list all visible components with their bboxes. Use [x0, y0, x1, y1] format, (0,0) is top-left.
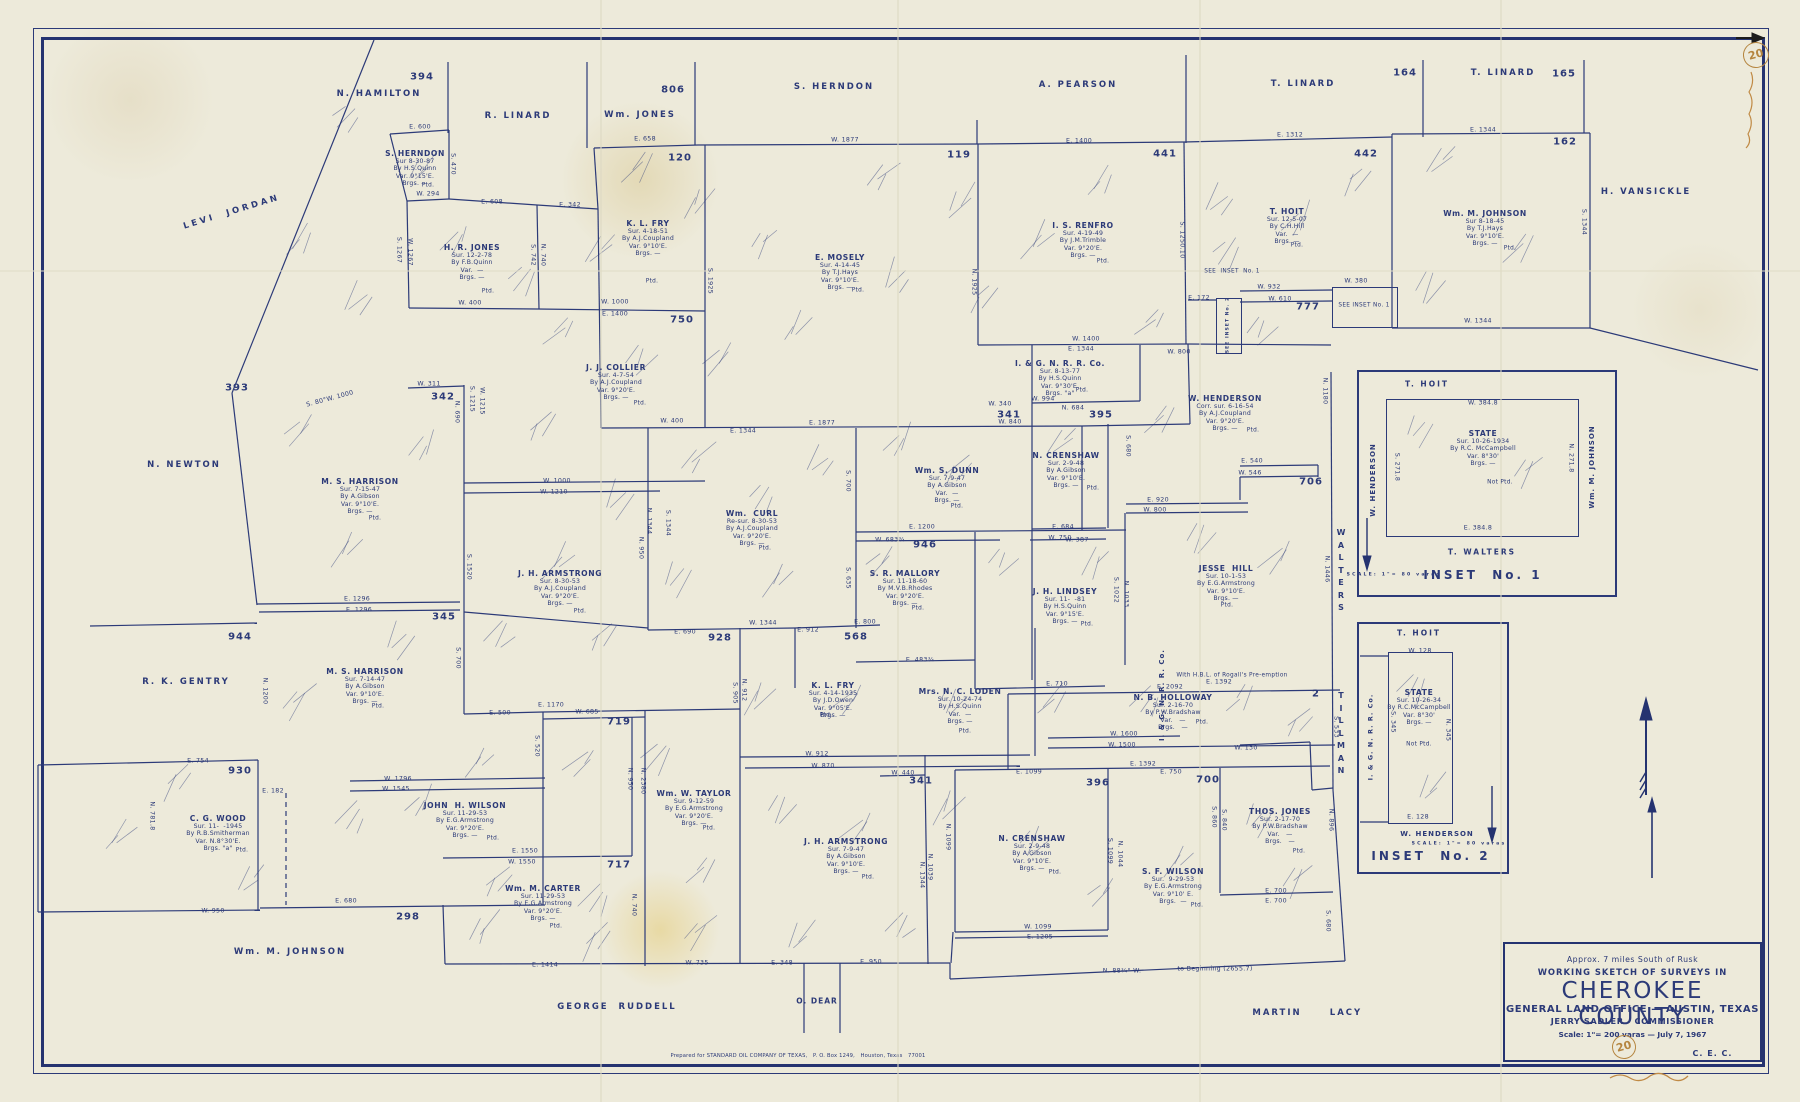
measurement-label: N. 88¾° W. — [1103, 967, 1141, 974]
map-note: Not Ptd. — [1487, 480, 1513, 487]
measurement-label: W. 610 — [1268, 295, 1291, 302]
measurement-label: W. 932 — [1257, 283, 1280, 290]
corner-number: 777 — [1296, 301, 1320, 313]
measurement-label: N. 1044 — [1116, 841, 1123, 868]
measurement-label: E. 684 — [1052, 523, 1074, 530]
edge-name: A. PEARSON — [1039, 81, 1118, 91]
map-note: Ptd. — [646, 279, 659, 286]
corner-number: 706 — [1299, 476, 1323, 488]
measurement-label: N. 912 — [740, 679, 747, 702]
survey-name: T. HOIT — [1267, 207, 1307, 216]
survey-info: Corr. sur. 6-16-54 By A.J.Coupland Var. … — [1188, 403, 1262, 432]
edge-name: T. LINARD — [1271, 80, 1336, 90]
survey-info: Sur. 2-17-70 By P.W.Bradshaw Var. — Brgs… — [1249, 816, 1311, 845]
measurement-label: S. 1344 — [1580, 209, 1587, 235]
survey-block: S. R. MALLORYSur. 11-18-60 By M.V.B.Rhod… — [870, 569, 941, 607]
measurement-label: W. 400 — [458, 299, 481, 306]
measurement-label: E. 1296 — [346, 606, 372, 613]
survey-block: JESSE HILLSur. 10-1-53 By E.G.Armstrong … — [1197, 564, 1255, 602]
survey-info: Sur. 11-29-53 By E.G.Armstrong Var. 9°20… — [424, 810, 506, 839]
measurement-label: W. 840 — [998, 418, 1021, 425]
measurement-label: E. 1200 — [909, 523, 935, 530]
corner-number: 342 — [431, 391, 455, 403]
survey-info: Sur. 4-14-1935 By J.D.Owen Var. 9°05'E. … — [809, 690, 858, 719]
survey-name: Wm. M. CARTER — [505, 884, 581, 893]
corner-number: 806 — [661, 84, 685, 96]
corner-number: 345 — [432, 611, 456, 623]
edge-name: Wm. JONES — [604, 111, 676, 121]
survey-info: Sur. 11-29-53 By E.G.Armstrong Var. 9°20… — [505, 893, 581, 922]
measurement-label: N. 1200 — [261, 678, 268, 705]
map-note: SEE INSET No. 1 — [1338, 303, 1389, 310]
measurement-label: S. 1215 — [468, 386, 475, 412]
edge-name: N. HAMILTON — [337, 90, 422, 100]
survey-block: S. F. WILSONSur. 9-29-53 By E.G.Armstron… — [1142, 867, 1204, 905]
edge-name: SCALE: 1"= 80 varas — [1412, 841, 1507, 846]
measurement-label: E. 608 — [481, 198, 503, 205]
survey-info: Sur. 9-29-53 By E.G.Armstrong Var. 9°10'… — [1142, 876, 1204, 905]
title-initials: C. E. C. — [1665, 1049, 1760, 1058]
survey-name: N. B. HOLLOWAY — [1134, 693, 1213, 702]
corner-number: 395 — [1089, 409, 1113, 421]
survey-info: Re-sur. 8-30-53 By A.J.Coupland Var. 9°2… — [726, 518, 778, 547]
survey-name: M. S. HARRISON — [326, 667, 404, 676]
measurement-label: N. 1033 — [1122, 581, 1129, 608]
title-office: GENERAL LAND OFFICE — AUSTIN, TEXAS — [1505, 1004, 1760, 1015]
corner-number: 568 — [844, 631, 868, 643]
measurement-label: E. 1400 — [1066, 137, 1092, 144]
measurement-label: E. 1170 — [538, 701, 564, 708]
survey-name: S. R. MALLORY — [870, 569, 941, 578]
measurement-label: W. 128 — [1408, 647, 1431, 654]
survey-name: S. F. WILSON — [1142, 867, 1204, 876]
survey-name: E. MOSELY — [815, 253, 865, 262]
survey-name: C. G. WOOD — [186, 814, 250, 823]
survey-block: W. HENDERSONCorr. sur. 6-16-54 By A.J.Co… — [1188, 394, 1262, 432]
survey-info: Sur. 11- -81 By H.S.Quinn Var. 9°15'E. B… — [1033, 596, 1098, 625]
measurement-label: N. 740 — [630, 894, 637, 917]
measurement-label: S. 860 — [1210, 806, 1217, 828]
measurement-label: W. 685 — [575, 708, 598, 715]
survey-block: I. & G. N. R. R. Co.Sur. 8-13-77 By H.S.… — [1015, 359, 1105, 397]
measurement-label: S. 271.8 — [1393, 453, 1400, 481]
north-arrow-icon — [1640, 698, 1652, 798]
map-note: Ptd. — [1293, 849, 1306, 856]
vertical-label: I. & G. N. R. R. Co. — [1367, 694, 1374, 781]
measurement-label: N. 690 — [453, 401, 460, 424]
survey-info: Sur. 9-12-59 By E.G.Armstrong Var. 9°20'… — [656, 798, 731, 827]
survey-info: Sur. 8-13-77 By H.S.Quinn Var. 9°30'E. B… — [1015, 368, 1105, 397]
measurement-label: N. 271.8 — [1567, 443, 1574, 472]
measurement-label: S. 680 — [1324, 910, 1331, 932]
measurement-label: S. 905 — [731, 682, 738, 704]
survey-block: K. L. FRYSur. 4-14-1935 By J.D.Owen Var.… — [809, 681, 858, 719]
vertical-label: Wm. M. JOHNSON — [1588, 425, 1596, 508]
measurement-label: S. 1267 — [395, 237, 402, 263]
map-note: Not Ptd. — [1406, 742, 1432, 749]
edge-name: T. HOIT — [1405, 381, 1449, 390]
measurement-label: W. 683¾ — [875, 536, 905, 543]
measurement-label: W. 1550 — [508, 858, 536, 865]
measurement-label: E. 182 — [262, 787, 284, 794]
survey-name: J. H. LINDSEY — [1033, 587, 1098, 596]
survey-name: K. L. FRY — [622, 219, 674, 228]
survey-info: Sur. 4-7-54 By A.J.Coupland Var. 9°20'E.… — [586, 372, 646, 401]
survey-block: THOS. JONESSur. 2-17-70 By P.W.Bradshaw … — [1249, 807, 1311, 845]
survey-info: Sur. 4-18-51 By A.J.Coupland Var. 9°10'E… — [622, 228, 674, 257]
edge-name: LACY — [1330, 1009, 1362, 1019]
survey-info: Sur. 7-9-47 By A.Gibson Var. 9°10'E. Brg… — [804, 846, 888, 875]
title-working-sketch: WORKING SKETCH OF SURVEYS IN — [1505, 967, 1760, 977]
survey-name: I. & G. N. R. R. Co. — [1015, 359, 1105, 368]
measurement-label: W. 294 — [416, 190, 439, 197]
measurement-label: S. 635 — [844, 567, 851, 589]
measurement-label: W. 1344 — [749, 619, 777, 626]
survey-name: JESSE HILL — [1197, 564, 1255, 573]
survey-name: H. R. JONES — [444, 243, 500, 252]
survey-info: Sur. 11- -1945 By R.B.Smitherman Var. N.… — [186, 823, 250, 852]
paper-crease — [600, 0, 602, 1102]
survey-info: Sur. 12-2-78 By F.B.Quinn Var. — Brgs. — — [444, 252, 500, 281]
corner-number: 442 — [1354, 148, 1378, 160]
measurement-label: N. 1344 — [918, 862, 925, 889]
map-note: Ptd. — [1097, 259, 1110, 266]
measurement-label: N. 1446 — [1323, 556, 1330, 583]
survey-info: Sur. 11-18-60 By M.V.B.Rhodes Var. 9°20'… — [870, 578, 941, 607]
measurement-label: E. 540 — [1241, 457, 1263, 464]
measurement-label: W. 735 — [685, 959, 708, 966]
corner-number: 165 — [1552, 68, 1576, 80]
measurement-label: S. 1250.10 — [1178, 221, 1185, 258]
survey-name: J. J. COLLIER — [586, 363, 646, 372]
survey-block: Wm. W. TAYLORSur. 9-12-59 By E.G.Armstro… — [656, 789, 731, 827]
survey-name: K. L. FRY — [809, 681, 858, 690]
edge-name: SCALE: 1"= 80 varas — [1347, 572, 1442, 577]
survey-info: Sur. 7-14-47 By A.Gibson Var. 9°10'E. Br… — [326, 676, 404, 705]
survey-block: Wm. M. JOHNSONSur 8-18-45 By T.J.Hays Va… — [1443, 209, 1527, 247]
survey-name: J. H. ARMSTRONG — [518, 569, 602, 578]
corner-number: 944 — [228, 631, 252, 643]
measurement-label: E. 1344 — [730, 427, 756, 434]
measurement-label: W. 1545 — [382, 785, 410, 792]
measurement-label: E. 750 — [1160, 768, 1182, 775]
measurement-label: N. 950 — [637, 537, 644, 560]
measurement-label: E. 600 — [409, 123, 431, 130]
map-note: With H.B.L. of Rogall's Pre-emption — [1176, 673, 1287, 680]
measurement-label: E. 1344 — [1068, 345, 1094, 352]
measurement-label: W. 400 — [660, 417, 683, 424]
survey-block: K. L. FRYSur. 4-18-51 By A.J.Coupland Va… — [622, 219, 674, 257]
survey-name: I. S. RENFRO — [1052, 221, 1113, 230]
measurement-label: E. 920 — [1147, 496, 1169, 503]
measurement-label: E. 1400 — [602, 310, 628, 317]
measurement-label: S. 680 — [1124, 435, 1131, 457]
survey-name: J. H. ARMSTRONG — [804, 837, 888, 846]
measurement-label: W. 1796 — [384, 775, 412, 782]
vertical-letter-stack: T I L L M A N — [1337, 690, 1345, 778]
corner-number: 2 — [1312, 688, 1320, 700]
measurement-label: W. 1344 — [1464, 317, 1492, 324]
measurement-label: W. 1215 — [478, 387, 485, 415]
measurement-label: S. 700 — [454, 647, 461, 669]
measurement-label: E. 1205 — [1027, 933, 1053, 940]
corner-number: 394 — [410, 71, 434, 83]
measurement-label: E. 700 — [1265, 887, 1287, 894]
edge-name: R. LINARD — [485, 112, 552, 122]
survey-name: Wm. M. JOHNSON — [1443, 209, 1527, 218]
measurement-label: E. 348 — [771, 959, 793, 966]
corner-number: 341 — [909, 775, 933, 787]
survey-name: JOHN H. WILSON — [424, 801, 506, 810]
handwritten-scribble-bottom-right — [1610, 1073, 1688, 1080]
survey-block: Wm. M. CARTERSur. 11-29-53 By E.G.Armstr… — [505, 884, 581, 922]
survey-name: STATE — [1387, 688, 1451, 697]
inset-box — [1388, 652, 1453, 824]
title-approx: Approx. 7 miles South of Rusk — [1505, 955, 1760, 964]
map-note: Ptd. — [951, 504, 964, 511]
measurement-label: E. 342 — [559, 201, 581, 208]
measurement-label: E. 1414 — [532, 961, 558, 968]
survey-info: Sur. 8-30-53 By A.J.Coupland Var. 9°20'E… — [518, 578, 602, 607]
measurement-label: W. 1099 — [1024, 923, 1052, 930]
corner-number: 120 — [668, 152, 692, 164]
survey-name: Wm. CURL — [726, 509, 778, 518]
corner-number: 298 — [396, 911, 420, 923]
measurement-label: S. 700 — [844, 470, 851, 492]
measurement-label: W. 800 — [1143, 506, 1166, 513]
measurement-label: N. 1925 — [970, 269, 977, 296]
measurement-label: N. 740 — [539, 244, 546, 267]
measurement-label: E. 1392 — [1206, 678, 1232, 685]
map-note: SEE INSET No. 1 — [1204, 269, 1260, 276]
corner-number: 162 — [1553, 136, 1577, 148]
corner-number: 164 — [1393, 67, 1417, 79]
survey-block: I. S. RENFROSur. 4-19-49 By J.M.Trimble … — [1052, 221, 1113, 259]
vertical-label: SEE INSET No. 2 — [1225, 297, 1230, 353]
survey-info: Sur. 4-19-49 By J.M.Trimble Var. 9°20'E.… — [1052, 230, 1113, 259]
measurement-label: E. 1392 — [1130, 760, 1156, 767]
map-note: Ptd. — [862, 875, 875, 882]
edge-name: H. VANSICKLE — [1601, 188, 1691, 198]
measurement-label: W. 1400 — [1072, 335, 1100, 342]
measurement-label: W. 546 — [1238, 469, 1261, 476]
measurement-label: W. 950 — [201, 907, 224, 914]
measurement-label: E. 483¾ — [906, 656, 934, 663]
vertical-letter-stack: W A L T E R S — [1337, 527, 1346, 615]
measurement-label: E. 1312 — [1277, 131, 1303, 138]
measurement-label: E. 690 — [674, 628, 696, 635]
measurement-label: N. 896 — [1327, 809, 1334, 832]
survey-block: J. H. LINDSEYSur. 11- -81 By H.S.Quinn V… — [1033, 587, 1098, 625]
measurement-label: N. 1039 — [926, 854, 933, 881]
measurement-label: E. 680 — [335, 897, 357, 904]
measurement-label: E. 1296 — [344, 595, 370, 602]
measurement-label: W. 1500 — [1108, 741, 1136, 748]
survey-block: N. CRENSHAWSur. 2-9-48 By A.Gibson Var. … — [998, 834, 1065, 872]
measurement-label: S. 1925 — [706, 268, 713, 294]
measurement-label: S. 1520 — [465, 554, 472, 580]
measurement-label: E. 754 — [187, 757, 209, 764]
measurement-label: N. 1180 — [1321, 378, 1328, 405]
survey-block: N. CRENSHAWSur. 2-9-48 By A.Gibson Var. … — [1032, 451, 1099, 489]
edge-name: T. HOIT — [1397, 630, 1441, 639]
title-commissioner: JERRY SADLER - COMMISSIONER — [1505, 1016, 1760, 1026]
paper-crease — [0, 270, 1800, 272]
survey-name: N. CRENSHAW — [998, 834, 1065, 843]
north-arrow-icon-2 — [1648, 798, 1656, 878]
map-note: Ptd. — [634, 401, 647, 408]
measurement-label: E. 700 — [1265, 897, 1287, 904]
survey-info: Sur. 2-9-48 By A.Gibson Var. 9°10'E. Brg… — [998, 843, 1065, 872]
map-note: Ptd. — [959, 729, 972, 736]
corner-number: 719 — [607, 716, 631, 728]
edge-name: Wm. M. JOHNSON — [234, 948, 346, 958]
measurement-label: E. 710 — [1046, 680, 1068, 687]
survey-block: JOHN H. WILSONSur. 11-29-53 By E.G.Armst… — [424, 801, 506, 839]
edge-name: INSET No. 2 — [1371, 850, 1490, 864]
measurement-label: N. 1344 — [645, 508, 652, 535]
survey-name: Mrs. N. C. LODEN — [919, 687, 1002, 696]
edge-name: MARTIN — [1252, 1009, 1301, 1019]
measurement-label: E. 912 — [797, 626, 819, 633]
survey-info: Sur. 10-1-53 By E.G.Armstrong Var. 9°10'… — [1197, 573, 1255, 602]
measurement-label: W. 1210 — [540, 488, 568, 495]
survey-info: Sur. 2-16-70 By P.W.Bradshaw Var. — Brgs… — [1134, 702, 1213, 731]
measurement-label: N. 781.8 — [148, 801, 155, 830]
survey-info: Sur. 2-9-48 By A.Gibson Var. 9°10'E. Brg… — [1032, 460, 1099, 489]
measurement-label: W. 750 — [1048, 534, 1071, 541]
measurement-label: S. 1099 — [1106, 838, 1113, 864]
survey-map-sheet: 20 Approx. 7 miles South of Rusk WORKING… — [0, 0, 1800, 1102]
measurement-label: W. 130 — [1234, 744, 1257, 751]
measurement-label: E. 1344 — [1470, 126, 1496, 133]
survey-info: Sur. 7-15-47 By A.Gibson Var. 9°10'E. Br… — [321, 486, 399, 515]
survey-block: J. J. COLLIERSur. 4-7-54 By A.J.Coupland… — [586, 363, 646, 401]
measurement-label: W. 380 — [1344, 277, 1367, 284]
survey-block: H. R. JONESSur. 12-2-78 By F.B.Quinn Var… — [444, 243, 500, 281]
measurement-label: W. 1000 — [543, 477, 571, 484]
corner-number: 441 — [1153, 148, 1177, 160]
survey-block: STATESur. 10-26-34 By R.C.McCampbell Var… — [1387, 688, 1451, 726]
measurement-label: W. 1267 — [406, 238, 413, 266]
survey-block: C. G. WOODSur. 11- -1945 By R.B.Smitherm… — [186, 814, 250, 852]
edge-name: W. HENDERSON — [1400, 830, 1474, 838]
survey-name: W. HENDERSON — [1188, 394, 1262, 403]
survey-block: N. B. HOLLOWAYSur. 2-16-70 By P.W.Bradsh… — [1134, 693, 1213, 731]
inset-box — [1386, 399, 1579, 537]
survey-block: M. S. HARRISONSur. 7-14-47 By A.Gibson V… — [326, 667, 404, 705]
survey-info: Sur 8-18-45 By T.J.Hays Var. 9°10'E. Brg… — [1443, 218, 1527, 247]
survey-block: J. H. ARMSTRONGSur. 8-30-53 By A.J.Coupl… — [518, 569, 602, 607]
survey-info: Sur. 7-9-47 By A.Gibson Var. — Brgs. — — [915, 475, 980, 504]
measurement-label: W. 1600 — [1110, 730, 1138, 737]
prepared-for-note: Prepared for STANDARD OIL COMPANY OF TEX… — [670, 1054, 925, 1060]
measurement-label: N. 950 — [626, 768, 633, 791]
corner-number: 928 — [708, 632, 732, 644]
corner-number: 119 — [947, 149, 971, 161]
survey-block: S. HERNDONSur 8-30-87 By H.S.Quinn Var. … — [385, 149, 445, 187]
measurement-label: E. 128 — [1407, 813, 1429, 820]
survey-block: J. H. ARMSTRONGSur. 7-9-47 By A.Gibson V… — [804, 837, 888, 875]
survey-name: S. HERNDON — [385, 149, 445, 158]
measurement-label: S. 520 — [533, 735, 540, 757]
measurement-label: E. 1877 — [809, 419, 835, 426]
handwritten-scribble-top-right — [1746, 72, 1753, 148]
measurement-label: E. 1550 — [512, 847, 538, 854]
measurement-label: E. 500 — [489, 709, 511, 716]
measurement-label: E. 1099 — [1016, 768, 1042, 775]
measurement-label: W. 340 — [988, 400, 1011, 407]
measurement-label: W. 1877 — [831, 136, 859, 143]
edge-name: S. HERNDON — [794, 83, 874, 93]
measurement-label: W. 384.8 — [1468, 399, 1498, 406]
survey-block: Mrs. N. C. LODENSur. 10-24-74 By H.S.Qui… — [919, 687, 1002, 725]
survey-block: M. S. HARRISONSur. 7-15-47 By A.Gibson V… — [321, 477, 399, 515]
corner-number: 700 — [1196, 774, 1220, 786]
survey-block: STATESur. 10-26-1934 By R.C. McCampbell … — [1450, 429, 1516, 467]
survey-info: Sur. 10-26-34 By R.C.McCampbell Var. 8°3… — [1387, 697, 1451, 726]
edge-name: GEORGE RUDDELL — [557, 1003, 676, 1013]
edge-name: N. NEWTON — [147, 461, 221, 471]
survey-name: THOS. JONES — [1249, 807, 1311, 816]
corner-number: 717 — [607, 859, 631, 871]
survey-block: E. MOSELYSur. 4-14-45 By T.J.Hays Var. 9… — [815, 253, 865, 291]
edge-name: T. LINARD — [1471, 69, 1536, 79]
survey-info: Sur. 4-14-45 By T.J.Hays Var. 9°10'E. Br… — [815, 262, 865, 291]
title-block: Approx. 7 miles South of Rusk WORKING SK… — [1503, 942, 1762, 1062]
survey-block: Wm. CURLRe-sur. 8-30-53 By A.J.Coupland … — [726, 509, 778, 547]
survey-name: STATE — [1450, 429, 1516, 438]
corner-number: 946 — [913, 539, 937, 551]
measurement-label: S. 742 — [529, 244, 536, 266]
measurement-label: E. 172 — [1188, 294, 1210, 301]
edge-name: R. K. GENTRY — [142, 678, 230, 688]
measurement-label: W. 311 — [417, 380, 440, 387]
measurement-label: S. 1344 — [664, 510, 671, 536]
corner-number: 396 — [1086, 777, 1110, 789]
measurement-label: S. 1022 — [1112, 577, 1119, 603]
measurement-label: N. 2380 — [639, 768, 646, 795]
map-note: Ptd. — [1221, 603, 1234, 610]
measurement-label: W. 800 — [1167, 348, 1190, 355]
map-note: Ptd. — [482, 289, 495, 296]
edge-name: T. WALTERS — [1448, 549, 1516, 558]
measurement-label: E. 658 — [634, 135, 656, 142]
corner-number: 930 — [228, 765, 252, 777]
survey-name: Wm. S. DUNN — [915, 466, 980, 475]
corner-number: 393 — [225, 382, 249, 394]
measurement-label: E. 384.8 — [1464, 524, 1492, 531]
map-note: Ptd. — [369, 516, 382, 523]
measurement-label: W. 440 — [891, 769, 914, 776]
survey-name: Wm. W. TAYLOR — [656, 789, 731, 798]
survey-info: Sur. 10-24-74 By H.S.Quinn Var. — Brgs. … — [919, 696, 1002, 725]
survey-block: T. HOITSur. 12-5-07 By C.H.Hill Var. — B… — [1267, 207, 1307, 245]
survey-info: Sur. 12-5-07 By C.H.Hill Var. — Brgs. — — [1267, 216, 1307, 245]
survey-info: Sur. 10-26-1934 By R.C. McCampbell Var. … — [1450, 438, 1516, 467]
corner-number: 750 — [670, 314, 694, 326]
measurement-label: E. 950 — [860, 958, 882, 965]
measurement-label: W. 1000 — [601, 298, 629, 305]
measurement-label: W. 912 — [805, 750, 828, 757]
measurement-label: N. 1099 — [944, 824, 951, 851]
survey-name: N. CRENSHAW — [1032, 451, 1099, 460]
measurement-label: S. 470 — [449, 153, 456, 175]
measurement-label: E. 800 — [854, 618, 876, 625]
measurement-label: S. 840 — [1220, 809, 1227, 831]
measurement-label: to Beginning (2655.7) — [1177, 965, 1252, 972]
paper-crease — [1199, 0, 1201, 1102]
